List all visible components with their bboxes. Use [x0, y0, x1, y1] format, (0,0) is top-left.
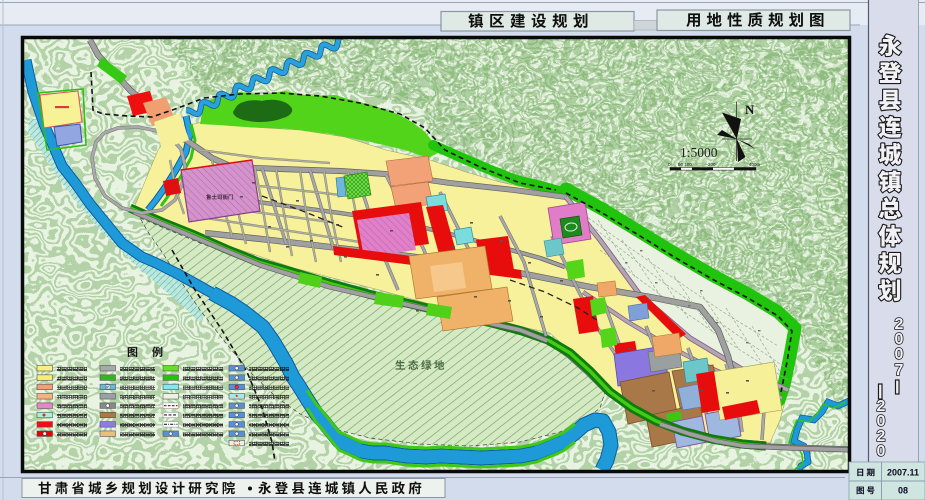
svg-text:08: 08: [898, 486, 908, 496]
svg-text:50 100: 50 100: [678, 162, 692, 167]
svg-text:0: 0: [877, 443, 886, 460]
svg-text:P: P: [106, 385, 109, 390]
svg-text:2007.11: 2007.11: [887, 468, 919, 478]
svg-text:200: 200: [708, 162, 716, 167]
svg-text:400m: 400m: [749, 162, 761, 167]
svg-text:N: N: [745, 102, 755, 117]
svg-text:7: 7: [895, 362, 904, 379]
svg-text:0: 0: [895, 346, 904, 363]
svg-text:1:5000: 1:5000: [680, 145, 718, 160]
